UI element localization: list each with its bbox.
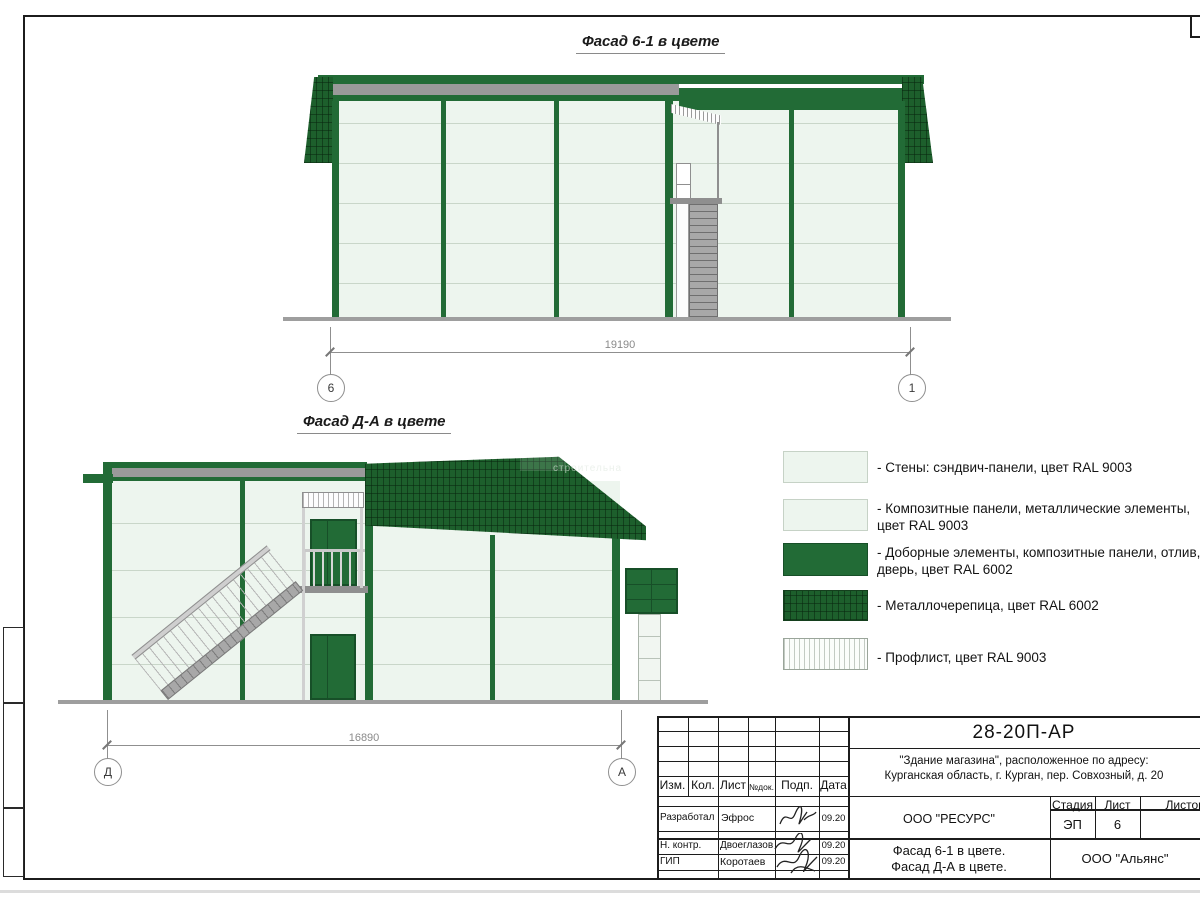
- facade-6-1-stair-stringer: [676, 204, 689, 318]
- sig-role-gip: ГИП: [660, 856, 680, 867]
- side-stamp-cell: [3, 703, 24, 808]
- col-header-data: Дата: [819, 778, 848, 792]
- facade-d-a-stair-landing: [298, 586, 368, 593]
- sheets-label: Листов: [1140, 798, 1200, 812]
- sheet-value: 6: [1095, 817, 1140, 832]
- title-block: Изм. Кол. Лист №док. Подп. Дата Разработ…: [657, 716, 1200, 880]
- top-right-stamp-box: [1190, 15, 1200, 38]
- legend-label-metal-tile: - Металлочерепица, цвет RAL 6002: [877, 597, 1200, 614]
- facade-6-1-ground-line: [283, 317, 951, 321]
- sig-role-ncontrol: Н. контр.: [660, 840, 701, 851]
- facade-6-1-fascia-strip: [332, 95, 679, 101]
- facade-6-1-title: Фасад 6-1 в цвете: [576, 33, 725, 54]
- axis-marker-a: А: [608, 758, 636, 786]
- facade-d-a-title: Фасад Д-А в цвете: [297, 413, 451, 434]
- client-org: ООО "Альянс": [1050, 851, 1200, 866]
- sheet-name-line1: Фасад 6-1 в цвете.: [848, 843, 1050, 859]
- axis-marker-1: 1: [898, 374, 926, 402]
- extension-line: [107, 710, 108, 765]
- facade-d-a-parapet-flashing: [112, 468, 367, 477]
- project-address-line2: Курганская область, г. Курган, пер. Совх…: [857, 769, 1191, 784]
- sig-date-ncontrol: 09.20: [819, 840, 848, 851]
- facade-6-1-mullion: [665, 101, 673, 317]
- sheet-name-line2: Фасад Д-А в цвете.: [848, 859, 1050, 875]
- facade-6-1-mullion: [554, 101, 559, 317]
- drawing-sheet: Фасад 6-1 в цвете 19190 6 1 Фасад Д-А в …: [0, 0, 1200, 900]
- facade-d-a-landing-post: [302, 508, 305, 702]
- col-header-ndok: №док.: [748, 782, 775, 792]
- dimension-line: [107, 745, 621, 746]
- facade-6-1-wall-panels: [332, 101, 904, 317]
- facade-d-a-balcony-railing: [304, 549, 365, 591]
- side-stamp-cell: [3, 627, 24, 703]
- sig-date-gip: 09.20: [819, 856, 848, 867]
- dimension-line: [330, 352, 911, 353]
- sig-name-developer: Эфрос: [721, 812, 754, 824]
- stage-value: ЭП: [1050, 817, 1095, 832]
- sheet-name: Фасад 6-1 в цвете. Фасад Д-А в цвете.: [848, 843, 1050, 875]
- side-stamp-cell: [3, 808, 24, 877]
- legend-swatch-walls: [783, 451, 868, 483]
- sig-name-gip: Коротаев: [720, 856, 765, 868]
- facade-d-a-sign-box: [625, 568, 678, 614]
- legend-label-trim: - Доборные элементы, композитные панели,…: [877, 544, 1200, 578]
- facade-6-1-dimension-value: 19190: [560, 339, 680, 351]
- sig-name-ncontrol: Двоеглазов: [720, 840, 773, 851]
- facade-6-1-corner-mullion: [898, 101, 905, 317]
- facade-d-a-sign-support: [638, 614, 661, 702]
- document-number: 28-20П-АР: [848, 722, 1200, 744]
- legend-label-composite: - Композитные панели, металлические элем…: [877, 500, 1200, 534]
- legend-swatch-profiled-sheet: [783, 638, 868, 670]
- facade-d-a-lower-door: [310, 634, 356, 700]
- facade-6-1-parapet-flashing: [332, 84, 679, 95]
- sheet-label: Лист: [1095, 798, 1140, 812]
- facade-6-1-corner-mullion: [332, 101, 339, 317]
- col-header-list: Лист: [718, 778, 748, 792]
- col-header-izm: Изм.: [657, 778, 688, 792]
- legend-label-profiled-sheet: - Профлист, цвет RAL 9003: [877, 649, 1200, 666]
- sig-date-developer: 09.20: [819, 813, 848, 824]
- stage-label: Стадия: [1050, 798, 1095, 812]
- project-address-line1: "Здание магазина", расположенное по адре…: [857, 754, 1191, 769]
- signature-developer: [776, 804, 818, 830]
- sig-role-developer: Разработал: [660, 812, 714, 823]
- col-header-podp: Подп.: [775, 778, 819, 792]
- designer-org: ООО "РЕСУРС": [848, 812, 1050, 826]
- col-header-kol: Кол.: [688, 778, 718, 792]
- legend-swatch-composite: [783, 499, 868, 531]
- watermark-text: строительна: [553, 463, 622, 474]
- legend-label-walls: - Стены: сэндвич-панели, цвет RAL 9003: [877, 459, 1200, 476]
- facade-d-a-corner-mullion: [612, 525, 620, 702]
- facade-6-1-roof-trim: [318, 75, 924, 84]
- facade-6-1-canopy-post: [717, 122, 719, 200]
- signature-ncontrol-gip: [771, 833, 821, 877]
- facade-6-1-mullion: [789, 101, 794, 317]
- extension-line: [621, 710, 622, 765]
- facade-d-a-ground-line: [58, 700, 708, 704]
- axis-marker-d: Д: [94, 758, 122, 786]
- facade-6-1-stair-flight: [689, 204, 718, 318]
- project-address: "Здание магазина", расположенное по адре…: [857, 754, 1191, 784]
- facade-d-a-canopy-post: [360, 508, 363, 588]
- sheet-bottom-edge: [0, 890, 1200, 893]
- facade-d-a-corner-mullion: [103, 463, 112, 702]
- facade-d-a-mullion: [490, 535, 495, 702]
- axis-marker-6: 6: [317, 374, 345, 402]
- legend-swatch-metal-tile: [783, 590, 868, 621]
- facade-d-a-dimension-value: 16890: [304, 732, 424, 744]
- facade-6-1-stair-railing: [676, 163, 691, 202]
- facade-6-1-mullion: [441, 101, 446, 317]
- legend-swatch-trim: [783, 543, 868, 576]
- facade-d-a-door-canopy: [302, 492, 364, 508]
